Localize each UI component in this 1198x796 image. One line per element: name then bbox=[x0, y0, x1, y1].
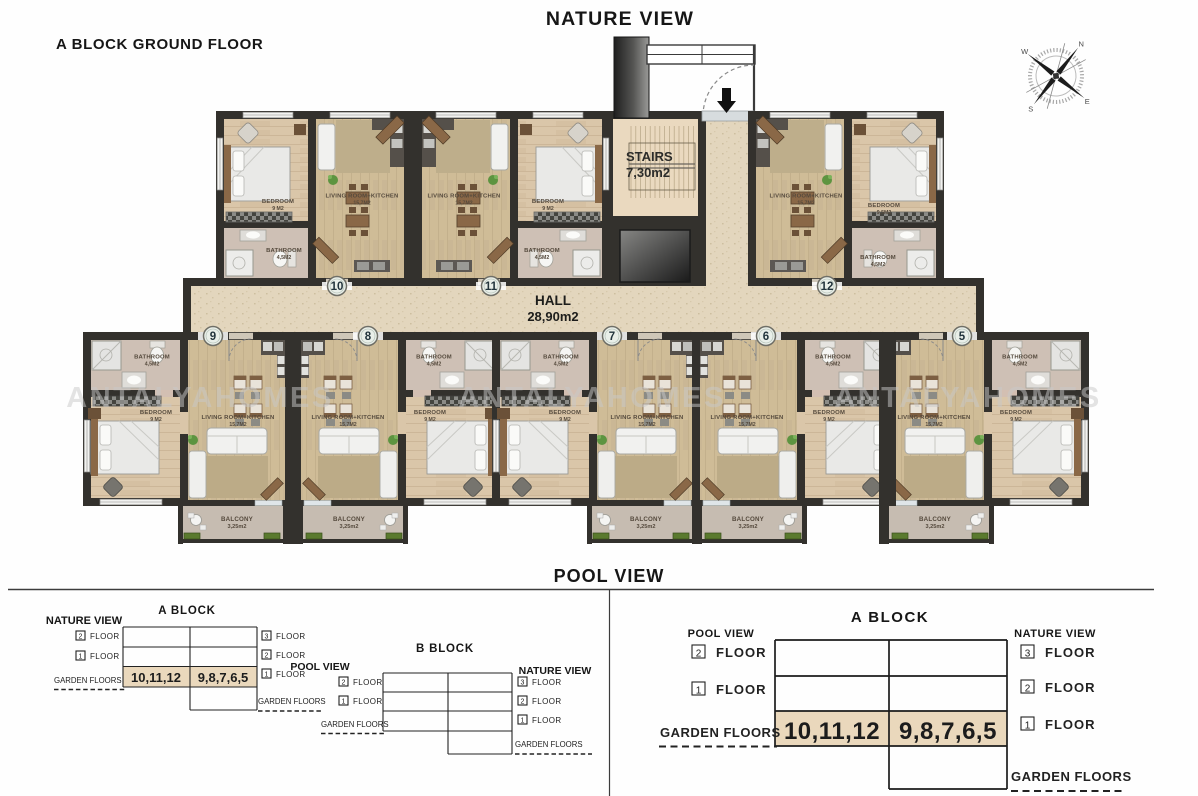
svg-text:LIVING ROOM+KITCHEN: LIVING ROOM+KITCHEN bbox=[311, 415, 384, 421]
svg-text:ANTALYAHOMES: ANTALYAHOMES bbox=[834, 382, 1101, 414]
svg-text:10,11,12: 10,11,12 bbox=[131, 670, 181, 685]
svg-text:15,7M2: 15,7M2 bbox=[797, 201, 814, 207]
svg-text:BALCONY: BALCONY bbox=[333, 516, 366, 523]
svg-text:10: 10 bbox=[331, 281, 344, 293]
svg-text:3,25m2: 3,25m2 bbox=[340, 524, 359, 530]
svg-text:POOL VIEW: POOL VIEW bbox=[688, 628, 755, 640]
svg-text:9 M2: 9 M2 bbox=[823, 417, 835, 423]
svg-text:STAIRS: STAIRS bbox=[626, 149, 673, 164]
svg-text:S: S bbox=[1028, 104, 1033, 113]
svg-text:9 M2: 9 M2 bbox=[542, 206, 554, 212]
svg-text:1: 1 bbox=[696, 686, 702, 697]
svg-text:15,7M2: 15,7M2 bbox=[339, 422, 356, 428]
svg-text:FLOOR: FLOOR bbox=[716, 682, 767, 697]
svg-text:BATHROOM: BATHROOM bbox=[543, 355, 579, 361]
svg-text:FLOOR: FLOOR bbox=[716, 645, 767, 660]
svg-text:9: 9 bbox=[210, 331, 216, 343]
svg-text:GARDEN FLOORS: GARDEN FLOORS bbox=[660, 725, 781, 740]
svg-text:LIVING ROOM+KITCHEN: LIVING ROOM+KITCHEN bbox=[201, 415, 274, 421]
svg-text:3,25m2: 3,25m2 bbox=[926, 524, 945, 530]
svg-text:FLOOR: FLOOR bbox=[532, 716, 562, 725]
svg-text:GARDEN FLOORS: GARDEN FLOORS bbox=[1011, 769, 1132, 784]
svg-text:NATURE VIEW: NATURE VIEW bbox=[519, 665, 592, 677]
svg-text:ANTALYAHOMES: ANTALYAHOMES bbox=[458, 382, 725, 414]
svg-text:2: 2 bbox=[79, 634, 83, 641]
svg-text:LIVING ROOM+KITCHEN: LIVING ROOM+KITCHEN bbox=[427, 194, 500, 200]
svg-text:POOL VIEW: POOL VIEW bbox=[290, 661, 349, 673]
svg-text:1: 1 bbox=[521, 718, 525, 725]
svg-text:NATURE VIEW: NATURE VIEW bbox=[546, 8, 694, 30]
svg-text:11: 11 bbox=[485, 281, 498, 293]
svg-text:BATHROOM: BATHROOM bbox=[1002, 355, 1038, 361]
svg-text:3: 3 bbox=[521, 680, 525, 687]
svg-text:4,5M2: 4,5M2 bbox=[1013, 362, 1028, 368]
svg-text:4,5M2: 4,5M2 bbox=[145, 362, 160, 368]
svg-text:FLOOR: FLOOR bbox=[353, 697, 383, 706]
svg-text:8: 8 bbox=[365, 331, 372, 343]
svg-text:6: 6 bbox=[763, 331, 769, 343]
svg-text:BALCONY: BALCONY bbox=[221, 516, 254, 523]
svg-text:2: 2 bbox=[1025, 684, 1031, 695]
svg-text:NATURE VIEW: NATURE VIEW bbox=[46, 615, 123, 627]
svg-text:9 M2: 9 M2 bbox=[559, 417, 571, 423]
svg-text:N: N bbox=[1079, 40, 1084, 49]
svg-text:15,7M2: 15,7M2 bbox=[638, 422, 655, 428]
svg-text:BEDROOM: BEDROOM bbox=[868, 203, 900, 209]
svg-text:POOL VIEW: POOL VIEW bbox=[554, 566, 665, 586]
svg-text:15,7M2: 15,7M2 bbox=[353, 201, 370, 207]
svg-text:GARDEN FLOORS: GARDEN FLOORS bbox=[321, 720, 389, 729]
svg-text:LIVING ROOM+KITCHEN: LIVING ROOM+KITCHEN bbox=[610, 415, 683, 421]
svg-text:BALCONY: BALCONY bbox=[919, 516, 952, 523]
svg-text:FLOOR: FLOOR bbox=[1045, 645, 1096, 660]
svg-text:5: 5 bbox=[959, 331, 966, 343]
svg-text:LIVING ROOM+KITCHEN: LIVING ROOM+KITCHEN bbox=[769, 194, 842, 200]
svg-text:1: 1 bbox=[1025, 721, 1031, 732]
svg-text:3,25m2: 3,25m2 bbox=[228, 524, 247, 530]
svg-text:4,5M2: 4,5M2 bbox=[535, 255, 550, 261]
svg-text:9 M2: 9 M2 bbox=[272, 206, 284, 212]
svg-text:2: 2 bbox=[521, 699, 525, 706]
svg-text:4,5M2: 4,5M2 bbox=[554, 362, 569, 368]
svg-text:GARDEN FLOORS: GARDEN FLOORS bbox=[515, 740, 583, 749]
svg-text:BEDROOM: BEDROOM bbox=[532, 199, 564, 205]
svg-text:A BLOCK GROUND FLOOR: A BLOCK GROUND FLOOR bbox=[56, 36, 263, 53]
svg-text:FLOOR: FLOOR bbox=[276, 651, 306, 660]
svg-text:9 M2: 9 M2 bbox=[1010, 417, 1022, 423]
svg-text:LIVING ROOM+KITCHEN: LIVING ROOM+KITCHEN bbox=[710, 415, 783, 421]
svg-text:12: 12 bbox=[821, 281, 834, 293]
svg-text:10,11,12: 10,11,12 bbox=[784, 718, 880, 745]
svg-text:BALCONY: BALCONY bbox=[732, 516, 765, 523]
svg-text:3,25m2: 3,25m2 bbox=[637, 524, 656, 530]
svg-text:1: 1 bbox=[265, 672, 269, 679]
svg-text:A BLOCK: A BLOCK bbox=[158, 605, 216, 617]
svg-text:HALL: HALL bbox=[535, 293, 571, 308]
svg-text:BEDROOM: BEDROOM bbox=[414, 410, 446, 416]
svg-text:7,30m2: 7,30m2 bbox=[626, 165, 670, 180]
svg-text:28,90m2: 28,90m2 bbox=[527, 309, 578, 324]
svg-text:ANTALYAHOMES: ANTALYAHOMES bbox=[66, 382, 333, 414]
svg-text:E: E bbox=[1085, 97, 1090, 106]
svg-text:A BLOCK: A BLOCK bbox=[851, 609, 929, 626]
svg-text:GARDEN FLOORS: GARDEN FLOORS bbox=[54, 676, 122, 685]
svg-text:LIVING ROOM+KITCHEN: LIVING ROOM+KITCHEN bbox=[325, 194, 398, 200]
svg-text:9,5M2: 9,5M2 bbox=[877, 210, 892, 216]
svg-text:BATHROOM: BATHROOM bbox=[134, 355, 170, 361]
svg-text:FLOOR: FLOOR bbox=[532, 678, 562, 687]
svg-text:3: 3 bbox=[265, 634, 269, 641]
svg-text:9,8,7,6,5: 9,8,7,6,5 bbox=[198, 670, 249, 685]
svg-text:BATHROOM: BATHROOM bbox=[416, 355, 452, 361]
svg-text:9,8,7,6,5: 9,8,7,6,5 bbox=[899, 718, 997, 745]
svg-text:15,7M2: 15,7M2 bbox=[738, 422, 755, 428]
svg-text:9 M2: 9 M2 bbox=[424, 417, 436, 423]
svg-text:4,5M2: 4,5M2 bbox=[826, 362, 841, 368]
svg-text:FLOOR: FLOOR bbox=[353, 678, 383, 687]
svg-text:B BLOCK: B BLOCK bbox=[416, 643, 474, 655]
svg-text:2: 2 bbox=[265, 653, 269, 660]
svg-text:2: 2 bbox=[342, 680, 346, 687]
svg-text:BATHROOM: BATHROOM bbox=[524, 248, 560, 254]
svg-text:BATHROOM: BATHROOM bbox=[860, 255, 896, 261]
svg-text:FLOOR: FLOOR bbox=[1045, 680, 1096, 695]
svg-text:9 M2: 9 M2 bbox=[150, 417, 162, 423]
svg-text:BATHROOM: BATHROOM bbox=[266, 248, 302, 254]
svg-text:15,7M2: 15,7M2 bbox=[925, 422, 942, 428]
svg-text:FLOOR: FLOOR bbox=[90, 652, 120, 661]
svg-text:GARDEN FLOORS: GARDEN FLOORS bbox=[258, 697, 326, 706]
svg-text:1: 1 bbox=[79, 654, 83, 661]
svg-text:2: 2 bbox=[696, 649, 702, 660]
svg-text:15,7M2: 15,7M2 bbox=[229, 422, 246, 428]
svg-text:BATHROOM: BATHROOM bbox=[815, 355, 851, 361]
svg-text:15,7M2: 15,7M2 bbox=[455, 201, 472, 207]
svg-text:4,5M2: 4,5M2 bbox=[277, 255, 292, 261]
svg-text:BALCONY: BALCONY bbox=[630, 516, 663, 523]
svg-text:NATURE VIEW: NATURE VIEW bbox=[1014, 628, 1096, 640]
svg-text:FLOOR: FLOOR bbox=[532, 697, 562, 706]
svg-text:W: W bbox=[1021, 47, 1029, 56]
svg-text:FLOOR: FLOOR bbox=[276, 632, 306, 641]
svg-text:7: 7 bbox=[609, 331, 615, 343]
svg-text:BEDROOM: BEDROOM bbox=[262, 199, 294, 205]
svg-text:1: 1 bbox=[342, 699, 346, 706]
svg-text:4,5M2: 4,5M2 bbox=[871, 262, 886, 268]
svg-text:LIVING ROOM+KITCHEN: LIVING ROOM+KITCHEN bbox=[897, 415, 970, 421]
svg-text:4,5M2: 4,5M2 bbox=[427, 362, 442, 368]
svg-text:FLOOR: FLOOR bbox=[1045, 717, 1096, 732]
svg-text:3,25m2: 3,25m2 bbox=[739, 524, 758, 530]
svg-text:3: 3 bbox=[1025, 649, 1031, 660]
svg-text:FLOOR: FLOOR bbox=[90, 632, 120, 641]
